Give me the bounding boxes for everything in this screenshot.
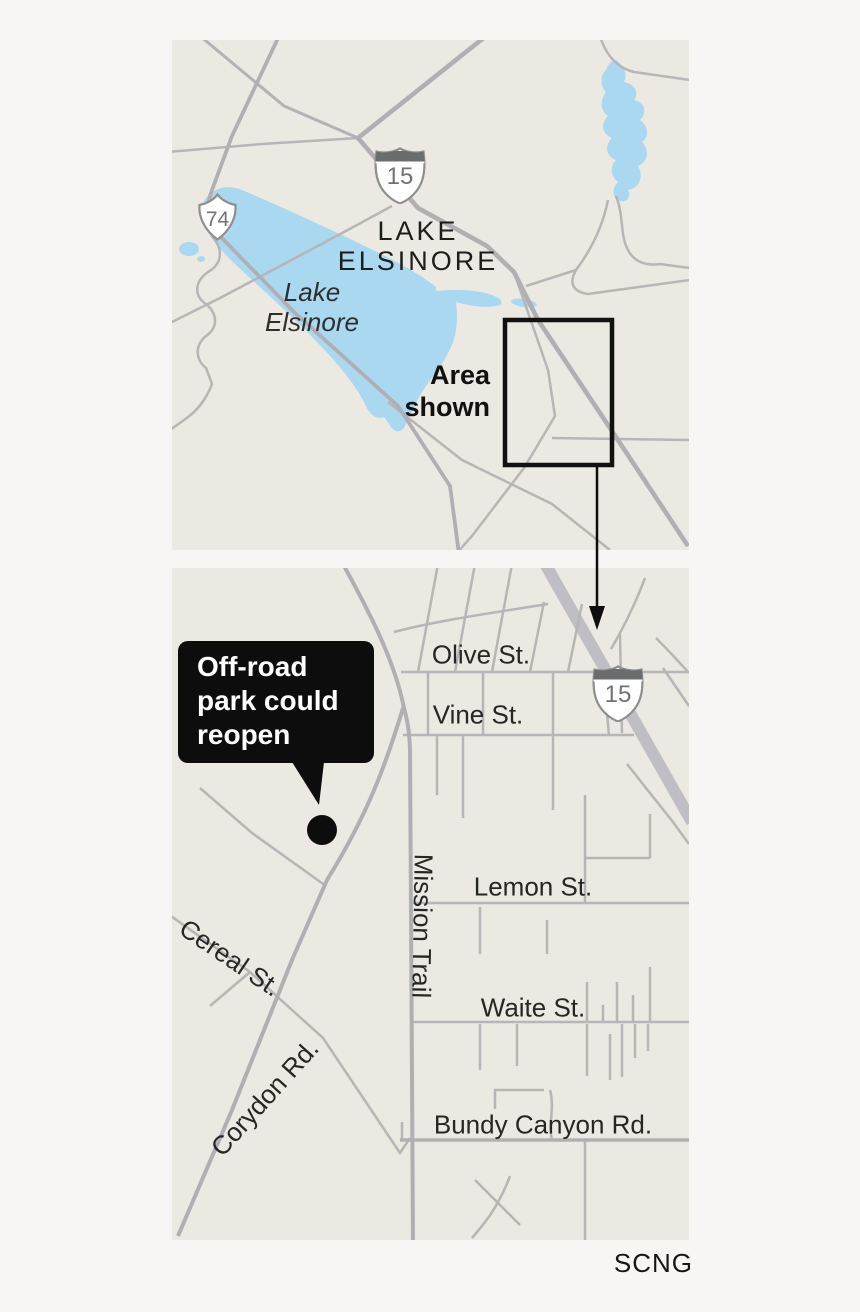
pond-west-small bbox=[197, 256, 205, 262]
interstate-15-number: 15 bbox=[373, 163, 427, 191]
pond-west bbox=[179, 242, 199, 256]
road-corydon-rd bbox=[178, 708, 403, 1236]
interstate-15-shield-detail: 15 bbox=[591, 664, 645, 722]
street-label-bundy-canyon: Bundy Canyon Rd. bbox=[434, 1110, 652, 1141]
city-label-line1: LAKE bbox=[288, 216, 548, 246]
arrow-head-icon bbox=[589, 606, 605, 630]
area-shown-box bbox=[505, 320, 612, 465]
park-location-marker bbox=[307, 815, 337, 845]
crossroad-northwest bbox=[200, 40, 358, 138]
callout-tail bbox=[292, 762, 324, 805]
city-label: LAKE ELSINORE bbox=[288, 216, 548, 276]
area-shown-line2: shown bbox=[405, 391, 491, 423]
interstate-15-number-detail: 15 bbox=[591, 681, 645, 709]
route-74-shield: 74 bbox=[194, 192, 241, 242]
callout-line1: Off-road bbox=[197, 650, 366, 684]
street-label-mission-trail: Mission Trail bbox=[405, 853, 439, 998]
lake-name-line1: Lake bbox=[212, 277, 412, 307]
street-label-vine: Vine St. bbox=[433, 700, 524, 731]
lake-name-line2: Elsinore bbox=[212, 307, 412, 337]
credit-scng: SCNG bbox=[614, 1248, 693, 1279]
street-label-lemon: Lemon St. bbox=[474, 872, 593, 903]
area-shown-label: Area shown bbox=[405, 359, 491, 423]
callout-line2: park could bbox=[197, 684, 366, 718]
route-74-number: 74 bbox=[194, 208, 241, 232]
area-shown-arrow bbox=[586, 462, 608, 634]
overview-map-panel: LAKE ELSINORE Lake Elsinore Area shown 1… bbox=[172, 40, 689, 550]
lake-name-label: Lake Elsinore bbox=[212, 277, 412, 337]
canyon-lake-water bbox=[602, 60, 648, 201]
interstate-15-shield: 15 bbox=[373, 146, 427, 204]
street-label-olive: Olive St. bbox=[432, 640, 530, 671]
locator-map-graphic: LAKE ELSINORE Lake Elsinore Area shown 1… bbox=[0, 0, 860, 1312]
callout-offroad-park: Off-road park could reopen bbox=[178, 641, 374, 763]
city-label-line2: ELSINORE bbox=[288, 246, 548, 276]
area-shown-line1: Area bbox=[405, 359, 491, 391]
street-label-waite: Waite St. bbox=[481, 993, 586, 1024]
detail-map-panel: Off-road park could reopen Olive St. Vin… bbox=[172, 568, 689, 1240]
callout-line3: reopen bbox=[197, 718, 366, 752]
